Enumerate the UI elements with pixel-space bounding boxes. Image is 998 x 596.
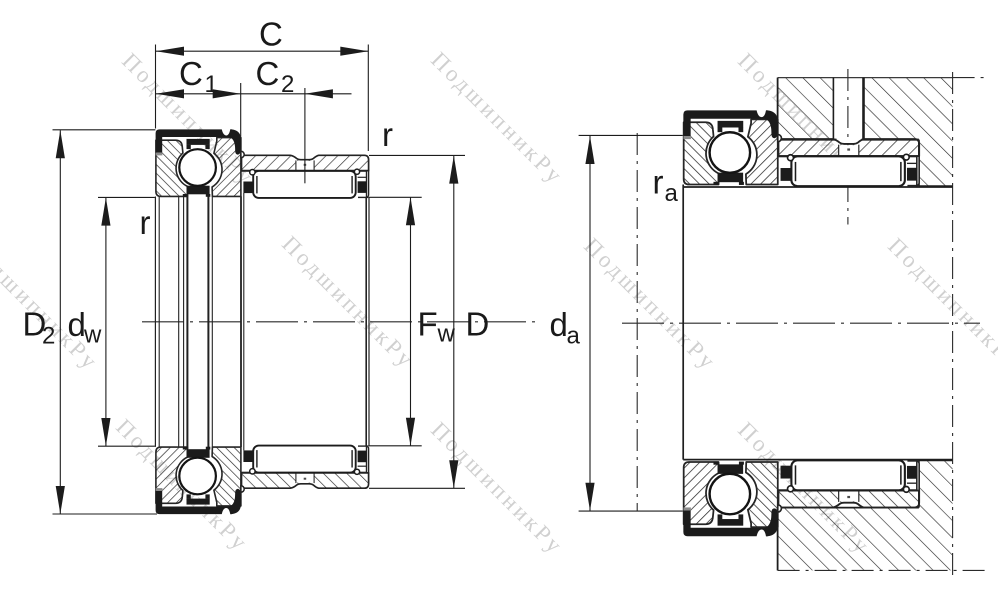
- svg-text:C: C: [259, 16, 283, 53]
- svg-text:r: r: [382, 116, 393, 153]
- svg-text:2: 2: [42, 323, 55, 350]
- svg-text:D: D: [466, 306, 490, 343]
- svg-text:C: C: [256, 55, 280, 92]
- svg-text:a: a: [665, 180, 679, 207]
- svg-text:F: F: [418, 306, 438, 343]
- svg-text:2: 2: [281, 71, 294, 98]
- svg-text:1: 1: [205, 71, 218, 98]
- svg-text:C: C: [179, 55, 203, 92]
- svg-text:a: a: [567, 323, 581, 350]
- svg-text:r: r: [653, 164, 664, 201]
- svg-text:d: d: [550, 306, 568, 343]
- svg-text:r: r: [140, 204, 151, 241]
- svg-text:w: w: [437, 321, 456, 348]
- svg-text:w: w: [83, 322, 102, 349]
